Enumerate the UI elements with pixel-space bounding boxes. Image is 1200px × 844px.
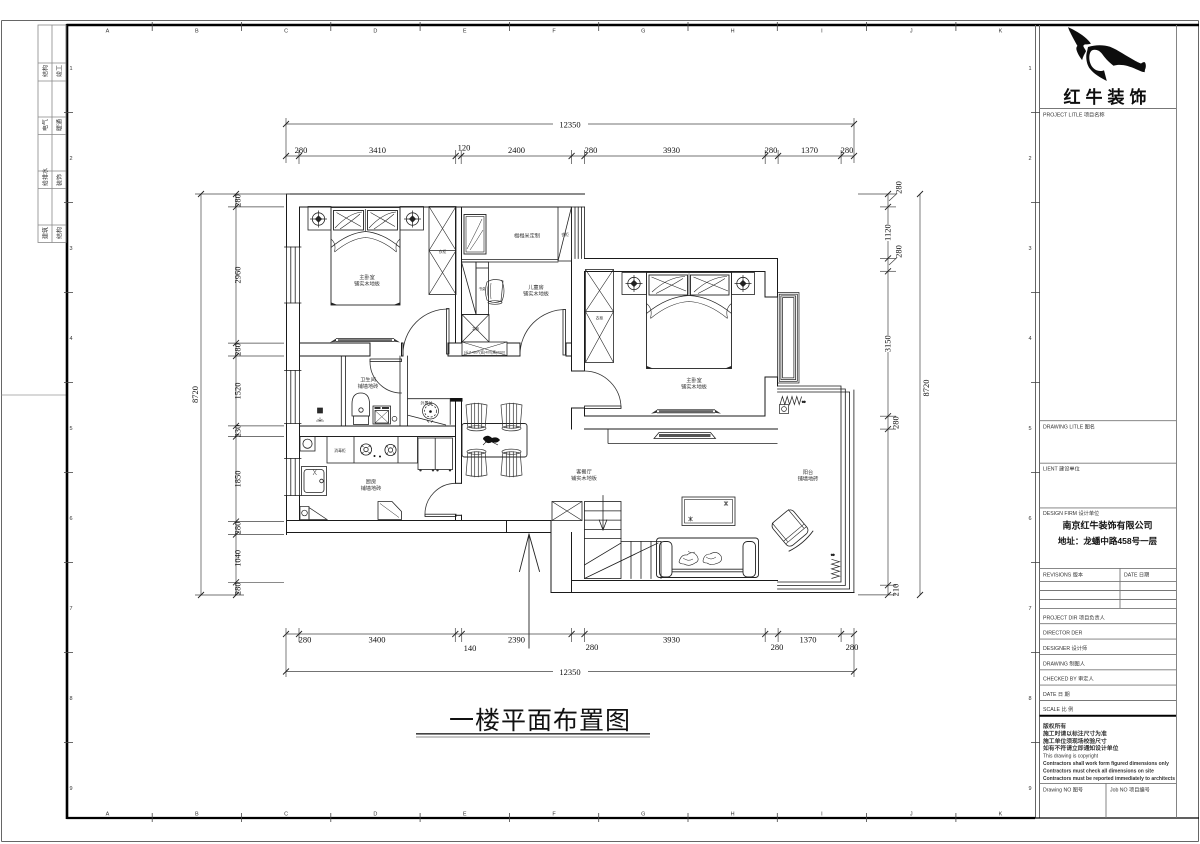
svg-text:1: 1: [70, 66, 73, 72]
svg-text:铺实木地板: 铺实木地板: [571, 474, 598, 482]
svg-text:铺实木地板: 铺实木地板: [523, 290, 550, 298]
svg-text:G: G: [641, 29, 645, 35]
svg-text:3930: 3930: [663, 145, 680, 155]
svg-text:A: A: [106, 29, 110, 35]
svg-text:2: 2: [70, 156, 73, 162]
svg-text:4: 4: [70, 336, 73, 342]
svg-text:A: A: [106, 812, 110, 818]
svg-text:Contractors must be reported i: Contractors must be reported immediately…: [1043, 776, 1175, 782]
svg-text:280: 280: [295, 145, 308, 155]
svg-text:3410: 3410: [369, 145, 386, 155]
svg-text:G: G: [641, 812, 645, 818]
svg-text:红牛装饰: 红牛装饰: [1064, 87, 1152, 107]
svg-text:D: D: [373, 812, 377, 818]
svg-text:B: B: [195, 29, 199, 35]
svg-text:E: E: [463, 812, 467, 818]
svg-text:H: H: [731, 812, 735, 818]
svg-text:竣工: 竣工: [56, 65, 64, 77]
svg-text:(长)1480*(宽)400(高)2000: (长)1480*(宽)400(高)2000: [464, 350, 505, 355]
svg-text:阳台: 阳台: [803, 468, 813, 476]
svg-text:Drawing NO 图号: Drawing NO 图号: [1043, 787, 1083, 794]
svg-text:8720: 8720: [921, 380, 931, 397]
svg-text:PROJECT DIR 项目负责人: PROJECT DIR 项目负责人: [1043, 614, 1105, 622]
svg-text:This drawing is copyright: This drawing is copyright: [1043, 754, 1099, 760]
svg-text:如有不符请立即通知设计单位: 如有不符请立即通知设计单位: [1043, 744, 1119, 752]
svg-text:280: 280: [233, 194, 243, 207]
svg-text:厨房: 厨房: [366, 478, 376, 486]
svg-text:SCALE 比 例: SCALE 比 例: [1043, 705, 1073, 713]
svg-text:DATE 日期: DATE 日期: [1124, 572, 1149, 579]
svg-text:暖通: 暖通: [56, 119, 64, 131]
svg-text:1520: 1520: [233, 383, 243, 400]
svg-text:8: 8: [70, 696, 73, 702]
svg-text:主卧室: 主卧室: [686, 376, 702, 384]
svg-text:**: **: [802, 400, 806, 405]
svg-text:施工时请以标注尺寸为准: 施工时请以标注尺寸为准: [1043, 729, 1107, 737]
svg-text:B: B: [195, 812, 199, 818]
svg-text:结构: 结构: [42, 65, 50, 77]
svg-text:280: 280: [846, 642, 859, 652]
svg-text:2960: 2960: [233, 267, 243, 284]
svg-text:主卧室: 主卧室: [359, 273, 375, 281]
svg-text:7: 7: [1029, 606, 1032, 612]
svg-text:J: J: [910, 812, 913, 818]
svg-text:PROJECT LITLE 项目名称: PROJECT LITLE 项目名称: [1043, 111, 1105, 119]
svg-text:4: 4: [1029, 336, 1032, 342]
svg-text:K: K: [999, 29, 1003, 35]
svg-text:DIRECTOR DER: DIRECTOR DER: [1043, 631, 1083, 637]
svg-text:2390: 2390: [508, 635, 525, 645]
svg-text:210: 210: [891, 584, 901, 597]
svg-text:140: 140: [464, 643, 477, 653]
svg-text:衣柜: 衣柜: [596, 316, 604, 321]
svg-text:7: 7: [70, 606, 73, 612]
svg-text:280: 280: [765, 145, 778, 155]
svg-text:280: 280: [841, 145, 854, 155]
svg-text:DATE 日 期: DATE 日 期: [1043, 691, 1070, 698]
svg-text:施工单位须现场校验尺寸: 施工单位须现场校验尺寸: [1043, 737, 1107, 745]
svg-text:结构: 结构: [56, 227, 64, 239]
svg-text:120: 120: [458, 143, 471, 153]
svg-text:DESIGNER 设计师: DESIGNER 设计师: [1043, 644, 1087, 652]
svg-text:南京红牛装饰有限公司: 南京红牛装饰有限公司: [1062, 520, 1152, 531]
svg-text:280: 280: [233, 343, 243, 356]
svg-text:衣柜: 衣柜: [561, 232, 569, 237]
svg-text:3400: 3400: [369, 635, 386, 645]
svg-text:8: 8: [1029, 696, 1032, 702]
svg-text:装饰: 装饰: [56, 174, 64, 186]
svg-text:3930: 3930: [663, 635, 680, 645]
svg-text:9: 9: [70, 786, 73, 792]
svg-text:Contractors must check all dim: Contractors must check all dimensions on…: [1043, 768, 1154, 774]
svg-text:5: 5: [70, 426, 73, 432]
svg-text:280: 280: [586, 642, 599, 652]
svg-text:H: H: [731, 29, 735, 35]
svg-text:版权所有: 版权所有: [1042, 722, 1066, 730]
svg-text:1370: 1370: [800, 635, 817, 645]
svg-text:铺实木地板: 铺实木地板: [681, 383, 708, 391]
svg-text:REVISIONS 版本: REVISIONS 版本: [1043, 571, 1083, 579]
svg-text:C: C: [284, 812, 288, 818]
svg-text:铺墙地砖: 铺墙地砖: [798, 475, 819, 483]
svg-text:12350: 12350: [559, 120, 580, 130]
svg-text:**: **: [831, 553, 835, 558]
svg-text:280: 280: [891, 416, 901, 429]
svg-text:2: 2: [1029, 156, 1032, 162]
svg-text:1370: 1370: [801, 145, 818, 155]
svg-text:1: 1: [1029, 66, 1032, 72]
svg-text:280: 280: [233, 522, 243, 535]
svg-text:铺墙地砖: 铺墙地砖: [361, 484, 382, 492]
svg-text:外置盆: 外置盆: [421, 400, 433, 406]
svg-text:DRAWING LITLE 图名: DRAWING LITLE 图名: [1043, 423, 1095, 431]
svg-text:铺墙地砖: 铺墙地砖: [358, 382, 379, 390]
svg-text:1120: 1120: [883, 224, 893, 241]
svg-text:3150: 3150: [883, 335, 893, 352]
svg-text:D: D: [373, 29, 377, 35]
svg-text:卫生间: 卫生间: [360, 376, 376, 384]
svg-text:E: E: [463, 29, 467, 35]
svg-text:280: 280: [233, 582, 243, 595]
svg-text:8720: 8720: [190, 386, 200, 403]
svg-text:280: 280: [299, 635, 312, 645]
svg-text:消毒柜: 消毒柜: [334, 448, 346, 453]
svg-text:给排水: 给排水: [42, 168, 50, 186]
svg-text:铺实木地板: 铺实木地板: [354, 280, 381, 288]
svg-text:5: 5: [1029, 426, 1032, 432]
svg-text:3: 3: [70, 246, 73, 252]
svg-text:K: K: [999, 812, 1003, 818]
svg-text:6: 6: [1029, 516, 1032, 522]
svg-text:280: 280: [894, 181, 904, 194]
svg-text:280: 280: [771, 642, 784, 652]
svg-text:榻榻米定制: 榻榻米定制: [514, 232, 540, 240]
svg-text:2400: 2400: [508, 145, 525, 155]
svg-text:9: 9: [1029, 786, 1032, 792]
svg-text:1040: 1040: [233, 550, 243, 567]
svg-text:Job NO 项目编号: Job NO 项目编号: [1110, 786, 1150, 794]
svg-text:书桌: 书桌: [479, 286, 486, 291]
svg-text:地址：龙蟠中路458号一层: 地址：龙蟠中路458号一层: [1058, 536, 1158, 546]
svg-text:CHECKED BY 审定人: CHECKED BY 审定人: [1043, 675, 1094, 683]
svg-text:230: 230: [233, 425, 243, 438]
svg-text:280: 280: [894, 245, 904, 258]
svg-text:衣柜: 衣柜: [439, 249, 447, 254]
svg-text:电气: 电气: [42, 119, 50, 131]
svg-text:LIENT 建设单位: LIENT 建设单位: [1043, 465, 1080, 473]
svg-text:6: 6: [70, 516, 73, 522]
svg-text:一楼平面布置图: 一楼平面布置图: [449, 707, 631, 735]
svg-text:DESIGN FIRM 设计单位: DESIGN FIRM 设计单位: [1043, 509, 1099, 517]
svg-text:C: C: [284, 29, 288, 35]
svg-text:280: 280: [585, 145, 598, 155]
svg-text:儿童房: 儿童房: [528, 283, 544, 291]
svg-text:3: 3: [1029, 246, 1032, 252]
svg-text:建筑: 建筑: [42, 227, 50, 239]
svg-text:Contractors shall work form fi: Contractors shall work form figured dime…: [1043, 761, 1169, 767]
svg-text:书柜: 书柜: [472, 327, 480, 332]
svg-text:J: J: [910, 29, 913, 35]
svg-text:客餐厅: 客餐厅: [576, 468, 592, 476]
svg-text:12350: 12350: [559, 667, 580, 677]
svg-text:1850: 1850: [233, 471, 243, 488]
svg-text:DRAWING 制图人: DRAWING 制图人: [1043, 660, 1085, 668]
